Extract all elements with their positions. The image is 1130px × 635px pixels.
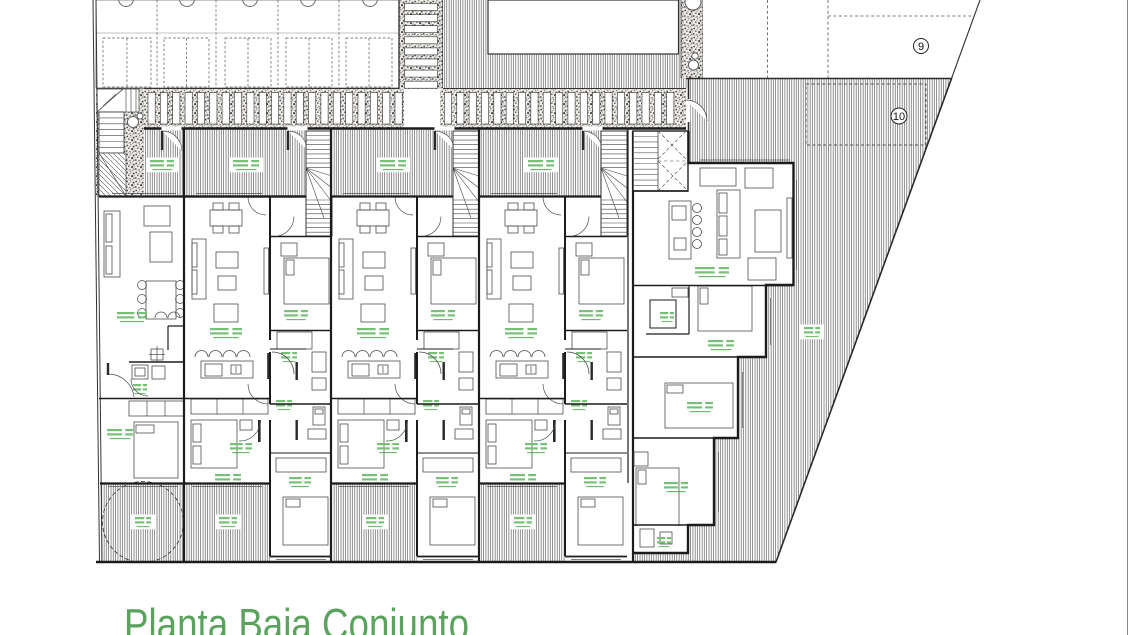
- svg-text:Planta Baja Conjunto: Planta Baja Conjunto: [124, 600, 469, 635]
- svg-text:10: 10: [893, 111, 905, 123]
- svg-text:9: 9: [918, 41, 924, 53]
